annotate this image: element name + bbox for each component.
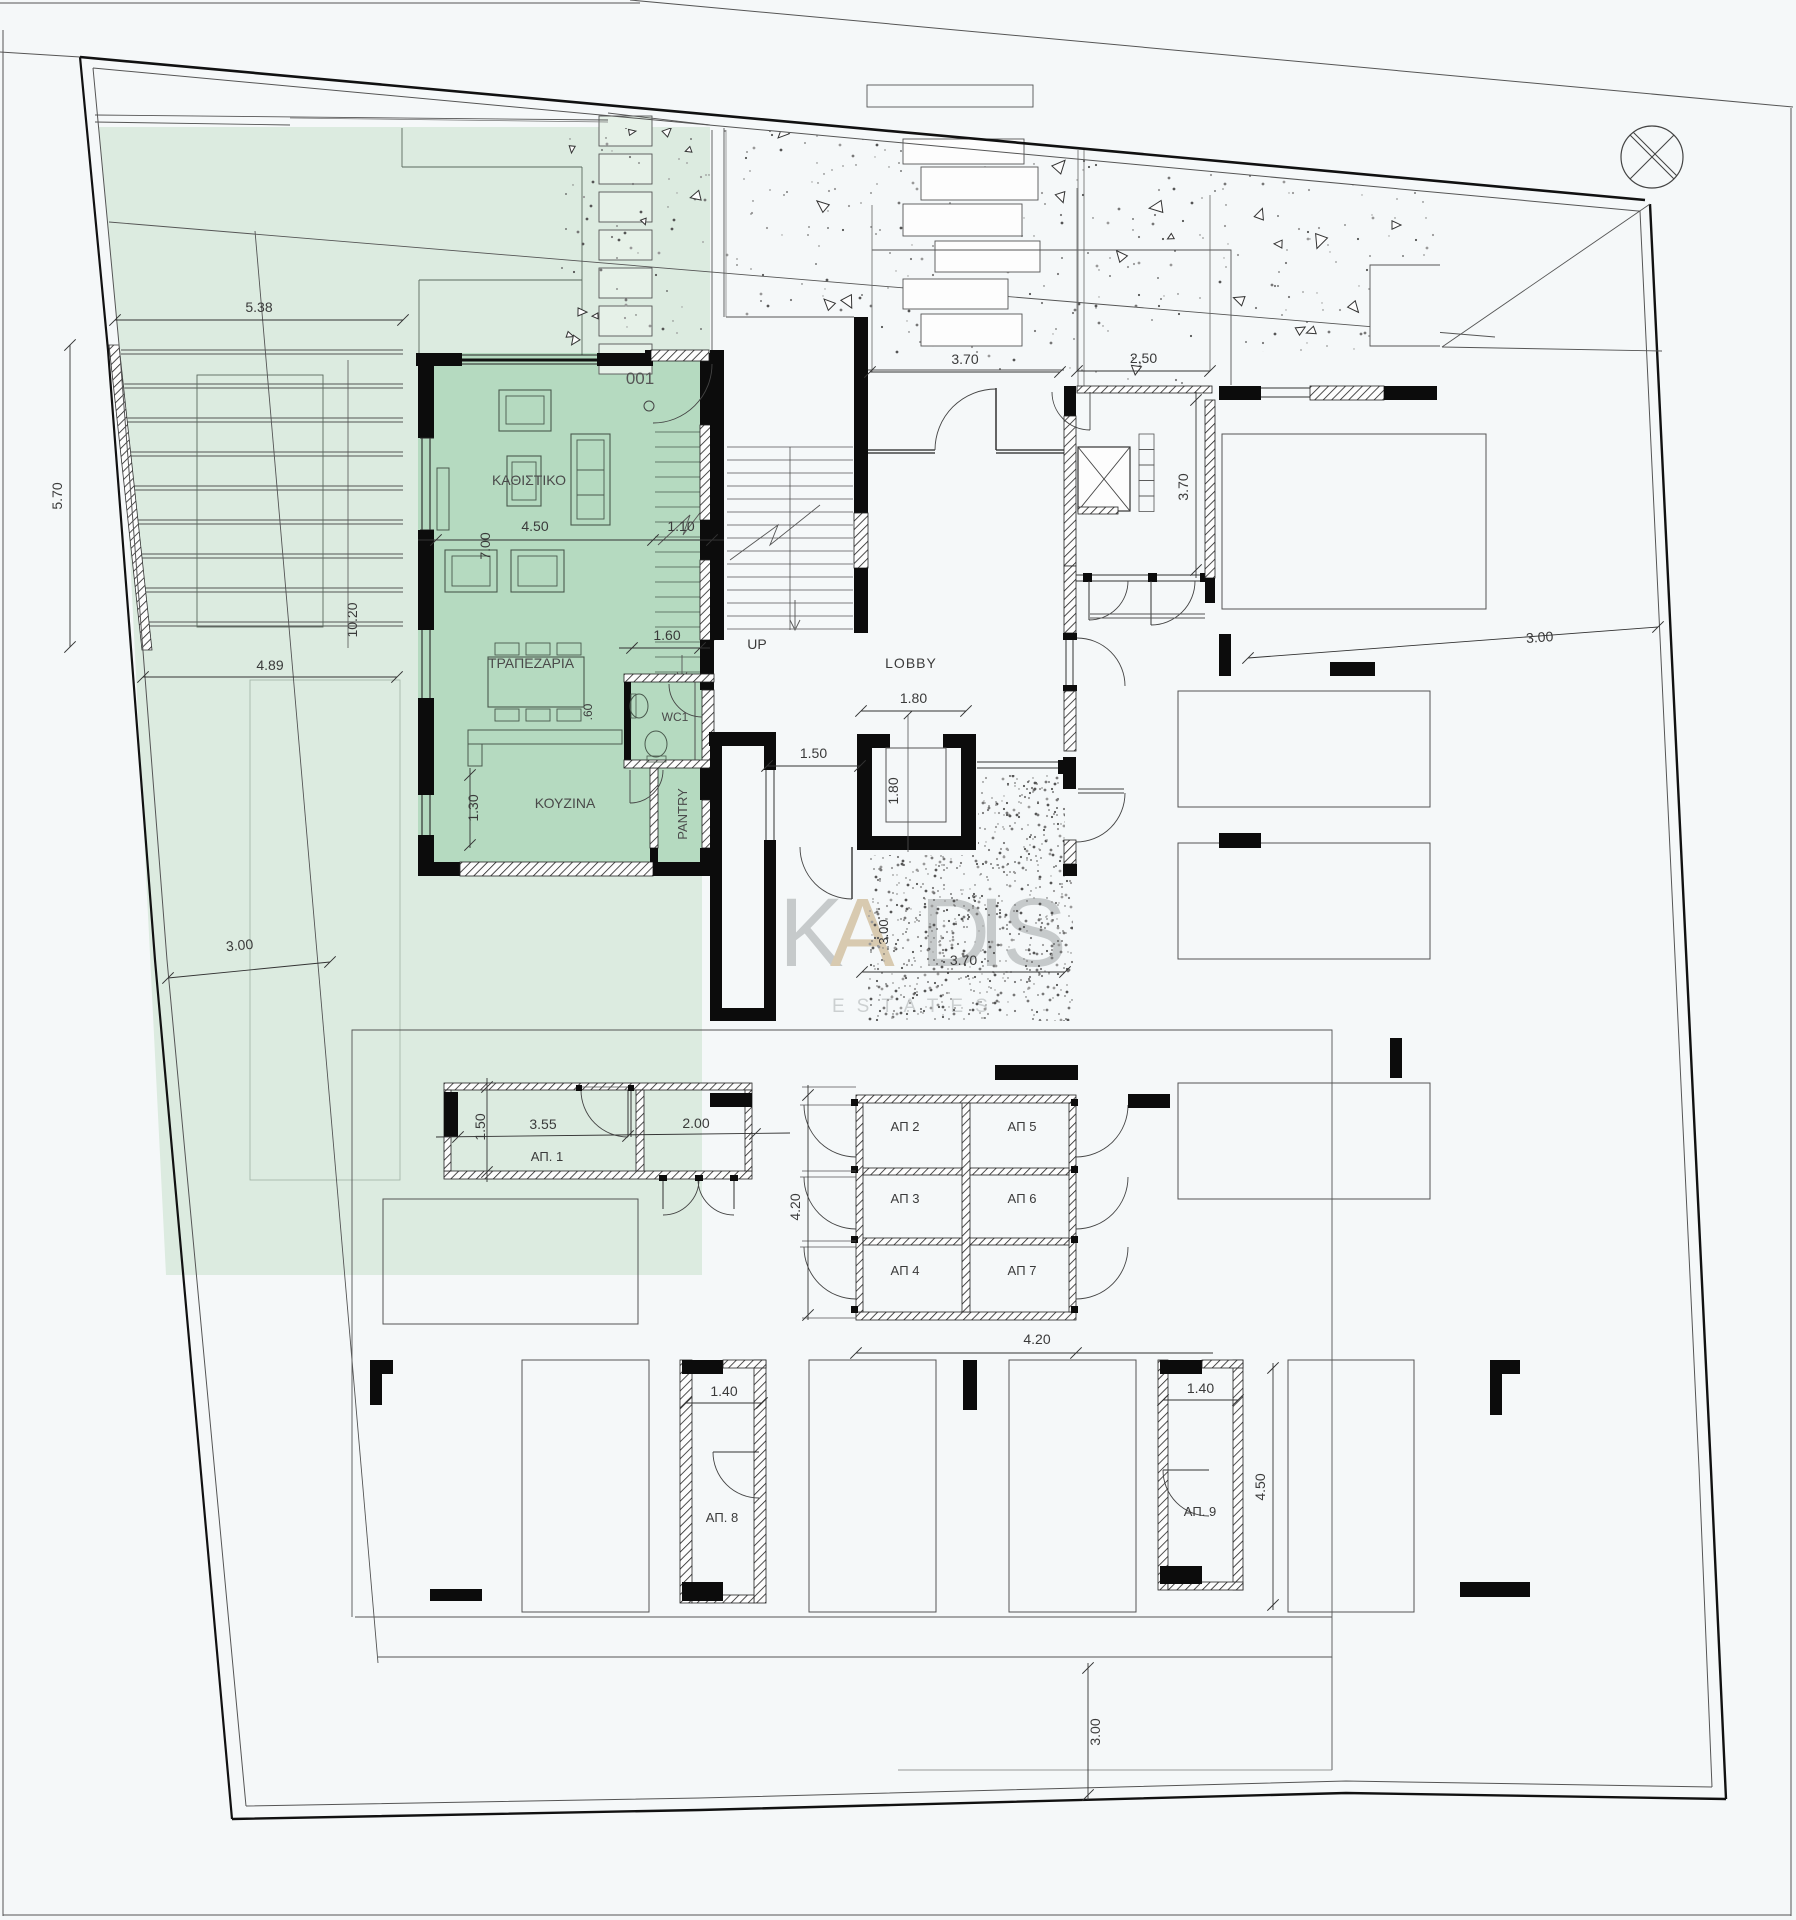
svg-text:ΚΑΘΙΣΤΙΚΟ: ΚΑΘΙΣΤΙΚΟ [492, 472, 566, 488]
svg-text:3.70: 3.70 [950, 952, 977, 968]
svg-text:ESTATES: ESTATES [832, 996, 1000, 1017]
svg-text:3.00: 3.00 [876, 919, 891, 944]
svg-text:4.89: 4.89 [256, 657, 283, 673]
svg-text:ΑΠ 4: ΑΠ 4 [891, 1263, 920, 1278]
svg-text:1.80: 1.80 [900, 690, 927, 706]
svg-text:3.00: 3.00 [1087, 1718, 1103, 1745]
svg-text:3.00: 3.00 [225, 936, 254, 954]
svg-text:3.55: 3.55 [529, 1116, 556, 1132]
svg-text:ΑΠ 7: ΑΠ 7 [1008, 1263, 1037, 1278]
svg-text:.60: .60 [581, 703, 595, 720]
svg-text:10.20: 10.20 [344, 602, 360, 637]
svg-text:S: S [1002, 878, 1067, 987]
svg-text:1.60: 1.60 [653, 627, 680, 643]
svg-text:7.00: 7.00 [477, 532, 493, 559]
svg-text:WC1: WC1 [662, 710, 689, 724]
svg-text:1.10: 1.10 [667, 518, 694, 534]
svg-text:4.50: 4.50 [1252, 1473, 1268, 1500]
svg-text:1.50: 1.50 [800, 745, 827, 761]
svg-text:1.80: 1.80 [885, 777, 901, 804]
svg-text:1.30: 1.30 [465, 794, 481, 821]
svg-text:ΑΠ. 9: ΑΠ. 9 [1184, 1504, 1217, 1519]
svg-text:ΑΠ. 8: ΑΠ. 8 [706, 1510, 739, 1525]
svg-text:5.70: 5.70 [49, 482, 65, 509]
svg-text:4.20: 4.20 [1023, 1331, 1050, 1347]
svg-text:PANTRY: PANTRY [675, 788, 690, 840]
svg-text:ΑΠ 2: ΑΠ 2 [891, 1119, 920, 1134]
svg-text:4.50: 4.50 [521, 518, 548, 534]
svg-text:2.50: 2.50 [1130, 350, 1157, 366]
svg-text:I: I [978, 878, 1005, 987]
svg-text:5.38: 5.38 [245, 299, 272, 315]
svg-text:2.00: 2.00 [682, 1115, 709, 1131]
svg-text:1.40: 1.40 [710, 1383, 737, 1399]
svg-text:ΚΟΥΖΙΝΑ: ΚΟΥΖΙΝΑ [535, 795, 596, 811]
svg-text:ΑΠ 3: ΑΠ 3 [891, 1191, 920, 1206]
svg-text:ΑΠ 5: ΑΠ 5 [1008, 1119, 1037, 1134]
svg-text:UP: UP [747, 636, 766, 652]
svg-text:LOBBY: LOBBY [885, 655, 937, 671]
svg-text:ΑΠ. 1: ΑΠ. 1 [531, 1149, 564, 1164]
svg-text:1.50: 1.50 [472, 1113, 488, 1140]
svg-text:1.40: 1.40 [1187, 1380, 1214, 1396]
svg-text:3.00: 3.00 [1526, 628, 1555, 646]
svg-text:ΑΠ 6: ΑΠ 6 [1008, 1191, 1037, 1206]
svg-text:3.70: 3.70 [951, 351, 978, 367]
svg-text:3.70: 3.70 [1175, 473, 1191, 500]
svg-text:4.20: 4.20 [787, 1193, 803, 1220]
svg-text:ΤΡΑΠΕΖΑΡΙΑ: ΤΡΑΠΕΖΑΡΙΑ [488, 655, 575, 671]
svg-text:001: 001 [626, 369, 654, 388]
